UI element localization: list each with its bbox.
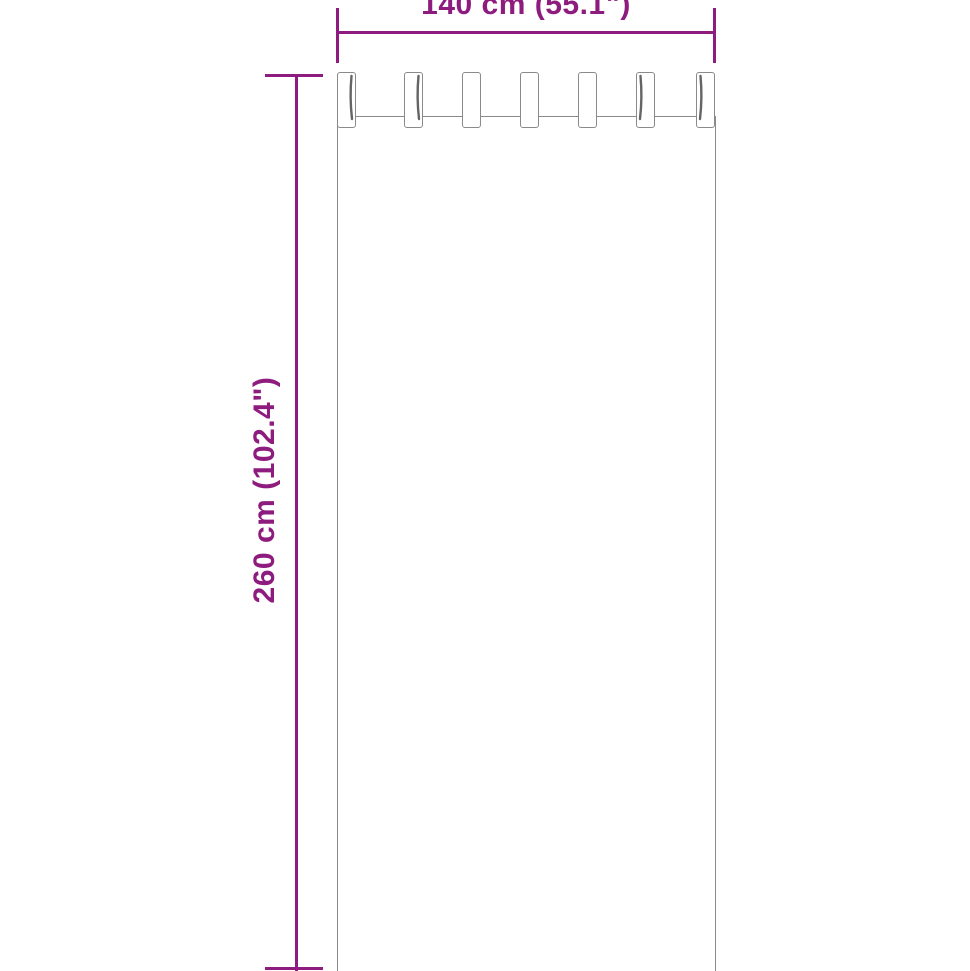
height-dimension-cap-bottom xyxy=(265,967,323,970)
curtain-tab xyxy=(696,72,715,128)
width-dimension-line xyxy=(336,31,716,34)
tab-fold-shadow xyxy=(636,72,655,128)
curtain-tab xyxy=(520,72,539,128)
curtain-panel xyxy=(337,116,716,971)
height-dimension-label: 260 cm (102.4") xyxy=(248,377,282,604)
tab-fold-shadow xyxy=(404,72,423,128)
width-dimension-cap-left xyxy=(336,8,339,63)
curtain-tab xyxy=(636,72,655,128)
curtain-tab xyxy=(337,72,356,128)
tab-fold-shadow xyxy=(696,72,715,128)
curtain-dimension-diagram: 140 cm (55.1") 260 cm (102.4") xyxy=(0,0,970,971)
tab-fold-shadow xyxy=(337,72,356,128)
width-dimension-cap-right xyxy=(713,8,716,63)
height-dimension-line xyxy=(295,74,298,971)
curtain-tab xyxy=(404,72,423,128)
height-dimension-cap-top xyxy=(265,74,323,77)
width-dimension-label: 140 cm (55.1") xyxy=(421,0,631,22)
curtain-tab xyxy=(578,72,597,128)
curtain-tab xyxy=(462,72,481,128)
